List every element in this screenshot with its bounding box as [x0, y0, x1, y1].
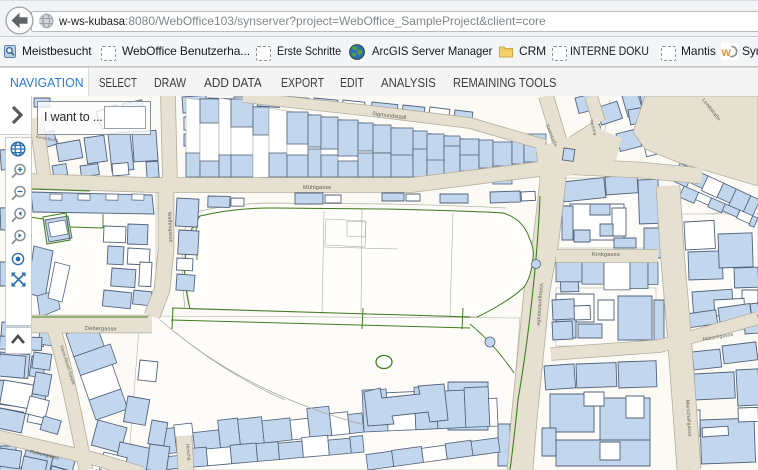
svg-text:Kinkgasse: Kinkgasse: [592, 252, 620, 258]
svg-text:Mühlgasse: Mühlgasse: [303, 185, 331, 191]
svg-text:Debergasse: Debergasse: [85, 326, 117, 333]
